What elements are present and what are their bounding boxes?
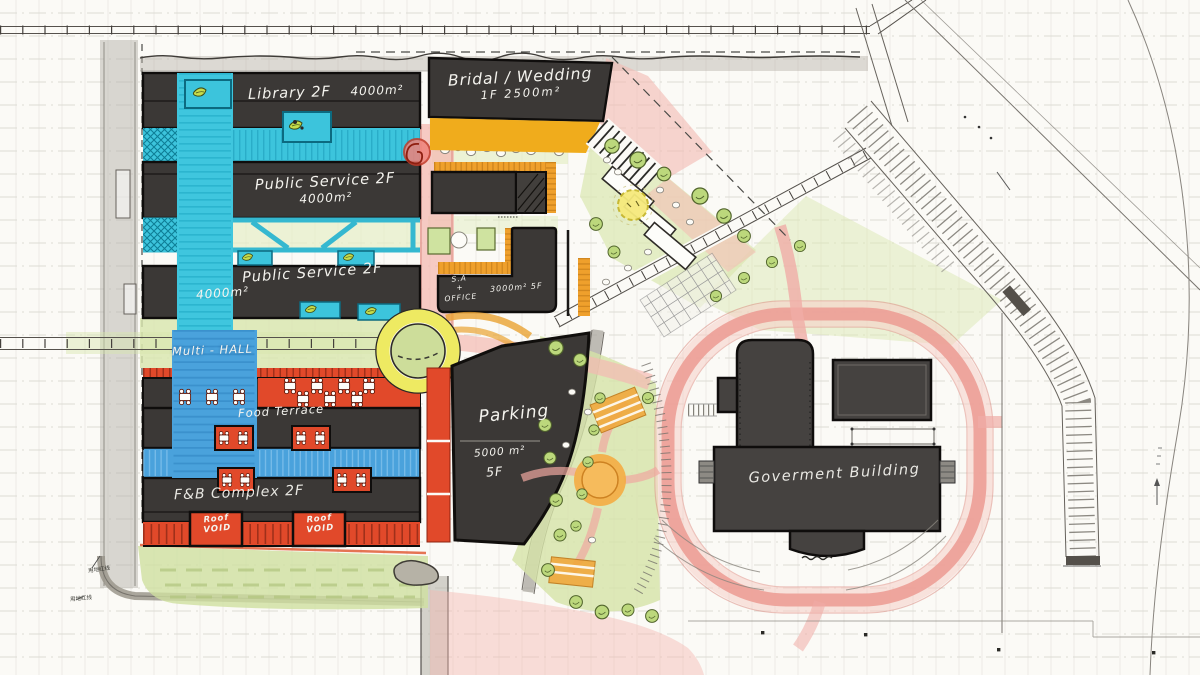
canopy-outline [852, 429, 934, 444]
boulder [394, 561, 438, 585]
multi-hall-label: Multi - HALL [172, 343, 253, 360]
mid-building [432, 162, 556, 217]
government-annex-building [833, 360, 936, 446]
sa-office-label: S.A + OFFICE [439, 272, 481, 304]
library-area: 4000m² [350, 83, 404, 99]
bridal-yellow-terrace [430, 118, 600, 153]
survey-scribble [802, 557, 832, 560]
site-plan-canvas [0, 0, 1200, 675]
fountain-circle [618, 190, 648, 220]
red-service-wall [427, 368, 450, 542]
parking-floors: 5F [485, 463, 503, 479]
drop-off-spiral-icon [404, 139, 430, 165]
site-plan: Library 2F 4000m² Bridal / Wedding 1F 25… [0, 0, 1200, 675]
library-name: Library 2F [248, 84, 331, 103]
north-arrow [1154, 478, 1160, 486]
